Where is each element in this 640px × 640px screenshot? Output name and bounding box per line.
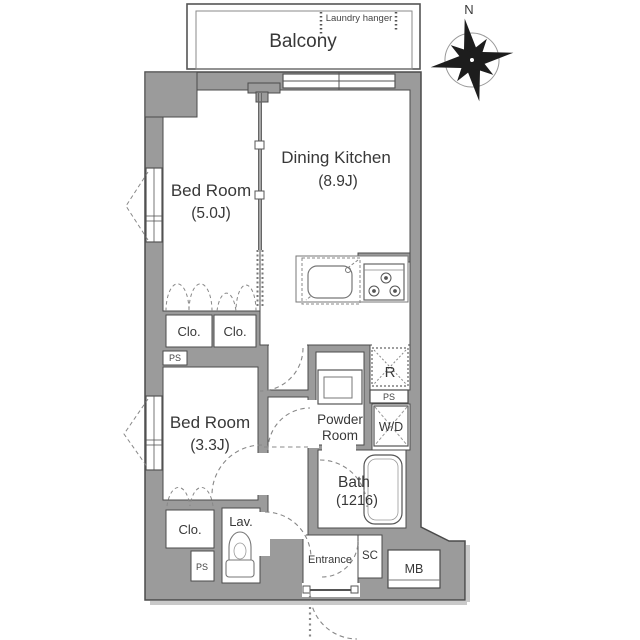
fridge-label: R [385, 364, 396, 381]
closet-label: Clo. [223, 324, 246, 339]
entrance-label: Entrance [308, 554, 352, 566]
shoe-closet-label: SC [362, 550, 378, 562]
floor-plan-canvas: Laundry hanger Balcony N [0, 0, 640, 640]
bedroom2-label: Bed Room [170, 413, 250, 432]
dining-kitchen-floor [260, 90, 410, 345]
washer-dryer-label: W/D [379, 420, 403, 434]
pipe-shaft-label: PS [169, 353, 181, 363]
hall-lower-floor [268, 397, 308, 535]
kitchen-counter [296, 256, 408, 304]
lav-label: Lav. [229, 514, 253, 529]
bedroom2-floor [163, 367, 258, 500]
bedroom2-door-opening [255, 453, 270, 495]
balcony-area: Laundry hanger Balcony [187, 4, 420, 69]
powder-room-label-1: Powder [317, 412, 363, 427]
dining-kitchen-size: (8.9J) [318, 173, 358, 190]
dk-fridge-opening [372, 341, 408, 350]
bath-label: Bath [338, 474, 370, 491]
hall-entrance-opening [270, 530, 306, 539]
closet-label: Clo. [177, 324, 200, 339]
bath-door-opening [322, 444, 356, 453]
floor-plan-page: Laundry hanger Balcony N [0, 0, 640, 640]
toilet-icon [226, 532, 254, 577]
shadow [150, 601, 467, 605]
bedroom1-size: (5.0J) [191, 205, 231, 222]
wall-block-topleft [145, 72, 197, 117]
dining-kitchen-label: Dining Kitchen [281, 148, 391, 167]
bedroom2-size: (3.3J) [190, 437, 230, 454]
bedroom1-label: Bed Room [171, 181, 251, 200]
lav-door-opening [257, 512, 270, 556]
bedroom1-floor [163, 90, 260, 311]
compass-icon: N [423, 2, 520, 109]
compass-north-label: N [464, 2, 473, 17]
dk-hall-opening [269, 341, 307, 350]
stove-icon [364, 264, 404, 300]
entrance-door [302, 583, 360, 597]
meter-box-label: MB [405, 562, 424, 576]
closet-label: Clo. [178, 522, 201, 537]
vanity-icon [318, 370, 362, 404]
balcony-label: Balcony [269, 31, 337, 52]
powder-room-label-2: Room [322, 428, 358, 443]
pipe-shaft-label: PS [196, 562, 208, 572]
shadow [466, 545, 470, 602]
laundry-hanger-label: Laundry hanger [326, 13, 393, 24]
bath-size: (1216) [336, 493, 378, 509]
pipe-shaft-label: PS [383, 392, 395, 402]
hall-upper-floor [268, 345, 308, 390]
